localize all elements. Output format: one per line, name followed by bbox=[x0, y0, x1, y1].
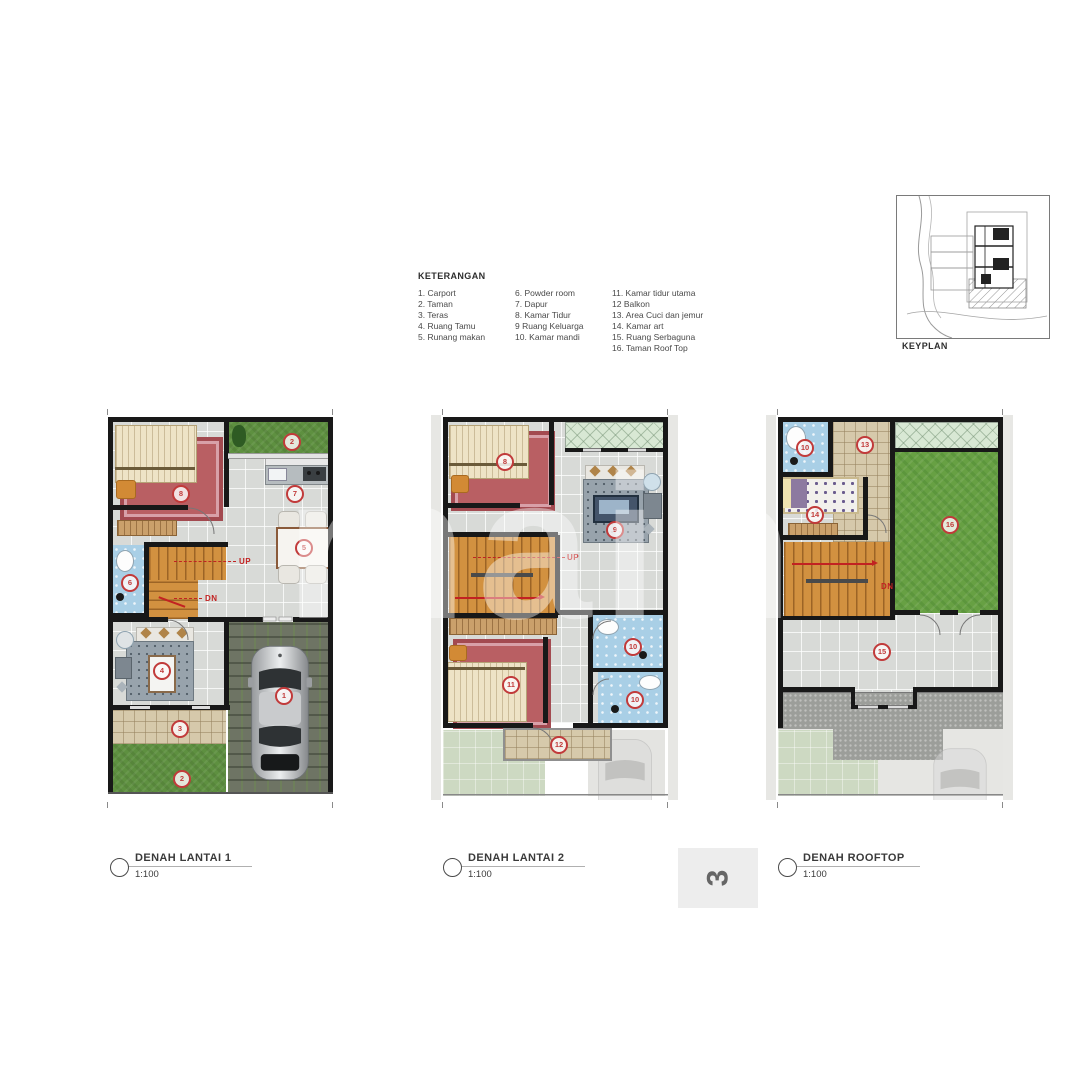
dim-tick bbox=[1002, 409, 1003, 415]
legend-col-1: 1. Carport 2. Taman 3. Teras 4. Ruang Ta… bbox=[418, 288, 485, 343]
room-badge: 10 bbox=[624, 638, 642, 656]
legend-item: 8. Kamar Tidur bbox=[515, 310, 584, 321]
room-badge: 8 bbox=[172, 485, 190, 503]
dim-tick bbox=[777, 802, 778, 808]
legend-item: 13. Area Cuci dan jemur bbox=[612, 310, 703, 321]
room-badge: 10 bbox=[796, 439, 814, 457]
keyplan-drawing bbox=[897, 196, 1049, 338]
dim-tick bbox=[777, 409, 778, 415]
legend-item: 4. Ruang Tamu bbox=[418, 321, 485, 332]
leader-line bbox=[473, 557, 565, 558]
walls-layer bbox=[108, 417, 333, 800]
stairs-up-label: UP bbox=[239, 557, 251, 566]
legend-col-2: 6. Powder room 7. Dapur 8. Kamar Tidur 9… bbox=[515, 288, 584, 343]
dim-tick bbox=[107, 409, 108, 415]
room-badge: 3 bbox=[171, 720, 189, 738]
room-badge: 15 bbox=[873, 643, 891, 661]
page-number: 3 bbox=[701, 870, 735, 887]
plot-divider bbox=[431, 415, 441, 800]
caption-circle bbox=[778, 858, 797, 877]
keyplan-label: KEYPLAN bbox=[902, 341, 948, 351]
room-badge: 6 bbox=[121, 574, 139, 592]
room-badge: 7 bbox=[286, 485, 304, 503]
legend-item: 14. Kamar art bbox=[612, 321, 703, 332]
room-badge: 13 bbox=[856, 436, 874, 454]
stairs-up-label: UP bbox=[567, 553, 579, 562]
room-badge: 9 bbox=[606, 521, 624, 539]
legend-item: 2. Taman bbox=[418, 299, 485, 310]
room-badge: 1 bbox=[275, 687, 293, 705]
page-number-box: 3 bbox=[678, 848, 758, 908]
dim-tick bbox=[332, 409, 333, 415]
dim-tick bbox=[667, 409, 668, 415]
stair-arrow bbox=[792, 563, 872, 565]
room-badge: 8 bbox=[496, 453, 514, 471]
legend-item: 10. Kamar mandi bbox=[515, 332, 584, 343]
floor-plan-rooftop: DN 10 13 16 14 bbox=[778, 417, 1003, 800]
keyplan bbox=[896, 195, 1050, 339]
room-badge: 14 bbox=[806, 506, 824, 524]
legend-item: 12 Balkon bbox=[612, 299, 703, 310]
room-badge: 11 bbox=[502, 676, 520, 694]
floor-plan-lantai-2: UP bbox=[443, 417, 668, 800]
legend-item: 6. Powder room bbox=[515, 288, 584, 299]
plot-divider bbox=[766, 415, 776, 800]
stair-arrow bbox=[455, 597, 539, 599]
dim-tick bbox=[667, 802, 668, 808]
caption-circle bbox=[110, 858, 129, 877]
leader-line bbox=[174, 561, 236, 562]
dim-tick bbox=[107, 802, 108, 808]
room-badge: 12 bbox=[550, 736, 568, 754]
dim-tick bbox=[442, 409, 443, 415]
caption-scale: 1:100 bbox=[135, 869, 159, 880]
legend-item: 3. Teras bbox=[418, 310, 485, 321]
caption-title: DENAH LANTAI 2 bbox=[468, 852, 564, 864]
stairs-down-label: DN bbox=[205, 594, 218, 603]
caption-title: DENAH LANTAI 1 bbox=[135, 852, 231, 864]
floor-plan-lantai-1: UP DN 8 2 7 5 6 4 3 2 1 bbox=[108, 417, 333, 800]
room-badge: 16 bbox=[941, 516, 959, 534]
room-badge: 4 bbox=[153, 662, 171, 680]
walls-layer bbox=[778, 417, 1003, 800]
legend: KETERANGAN 1. Carport 2. Taman 3. Teras … bbox=[418, 271, 486, 281]
room-badge: 2 bbox=[283, 433, 301, 451]
legend-item: 5. Runang makan bbox=[418, 332, 485, 343]
legend-col-3: 11. Kamar tidur utama 12 Balkon 13. Area… bbox=[612, 288, 703, 354]
caption-scale: 1:100 bbox=[468, 869, 492, 880]
stair-arrowhead bbox=[872, 560, 878, 566]
stair-arrowhead bbox=[539, 594, 545, 600]
legend-item: 7. Dapur bbox=[515, 299, 584, 310]
room-badge: 5 bbox=[295, 539, 313, 557]
legend-item: 9 Ruang Keluarga bbox=[515, 321, 584, 332]
leader-line bbox=[174, 598, 202, 599]
plot-divider bbox=[668, 415, 678, 800]
dim-tick bbox=[1002, 802, 1003, 808]
caption-line bbox=[786, 866, 920, 867]
caption-line bbox=[451, 866, 585, 867]
legend-item: 15. Ruang Serbaguna bbox=[612, 332, 703, 343]
architectural-sheet: { "legend": { "title": "KETERANGAN", "co… bbox=[0, 0, 1080, 1080]
dim-tick bbox=[332, 802, 333, 808]
legend-item: 16. Taman Roof Top bbox=[612, 343, 703, 354]
window bbox=[228, 453, 328, 459]
plot-divider bbox=[1003, 415, 1013, 800]
stairs-down-label: DN bbox=[881, 582, 894, 591]
legend-item: 1. Carport bbox=[418, 288, 485, 299]
caption-title: DENAH ROOFTOP bbox=[803, 852, 905, 864]
dim-tick bbox=[442, 802, 443, 808]
legend-title: KETERANGAN bbox=[418, 271, 486, 281]
legend-item: 11. Kamar tidur utama bbox=[612, 288, 703, 299]
caption-circle bbox=[443, 858, 462, 877]
room-badge: 10 bbox=[626, 691, 644, 709]
room-badge: 2 bbox=[173, 770, 191, 788]
caption-line bbox=[118, 866, 252, 867]
caption-scale: 1:100 bbox=[803, 869, 827, 880]
